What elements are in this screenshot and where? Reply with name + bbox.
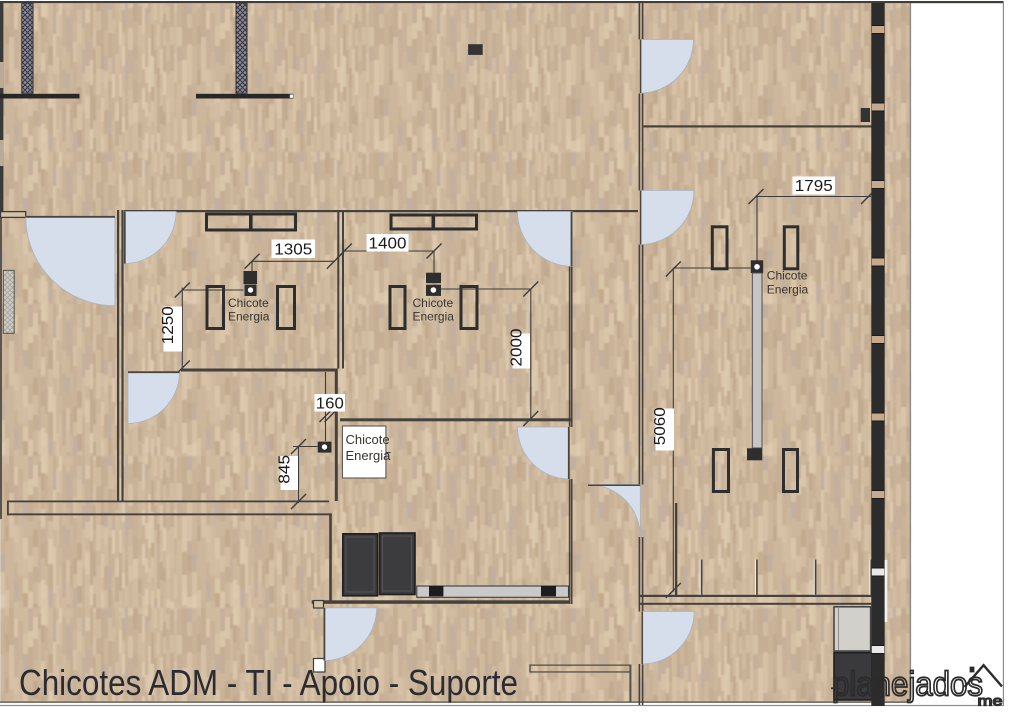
svg-text:1305: 1305: [274, 242, 312, 259]
svg-text:2000: 2000: [509, 328, 526, 366]
svg-text:ChicoteEnergia: ChicoteEnergia: [346, 432, 392, 463]
svg-text:planejados: planejados: [832, 666, 983, 704]
svg-text:5060: 5060: [652, 407, 669, 445]
svg-text:ChicoteEnergia: ChicoteEnergia: [228, 296, 270, 324]
svg-text:ChicoteEnergia: ChicoteEnergia: [767, 269, 809, 297]
svg-text:1250: 1250: [160, 306, 177, 344]
svg-text:160: 160: [316, 395, 344, 412]
svg-text:ChicoteEnergia: ChicoteEnergia: [413, 296, 455, 324]
svg-text:845: 845: [276, 455, 293, 484]
svg-text:Chicotes ADM - TI - Apoio - S: Chicotes ADM - TI - Apoio - Suporte: [19, 662, 518, 703]
svg-text:me: me: [978, 693, 1003, 709]
svg-text:1795: 1795: [795, 178, 833, 195]
svg-text:1400: 1400: [369, 235, 407, 252]
